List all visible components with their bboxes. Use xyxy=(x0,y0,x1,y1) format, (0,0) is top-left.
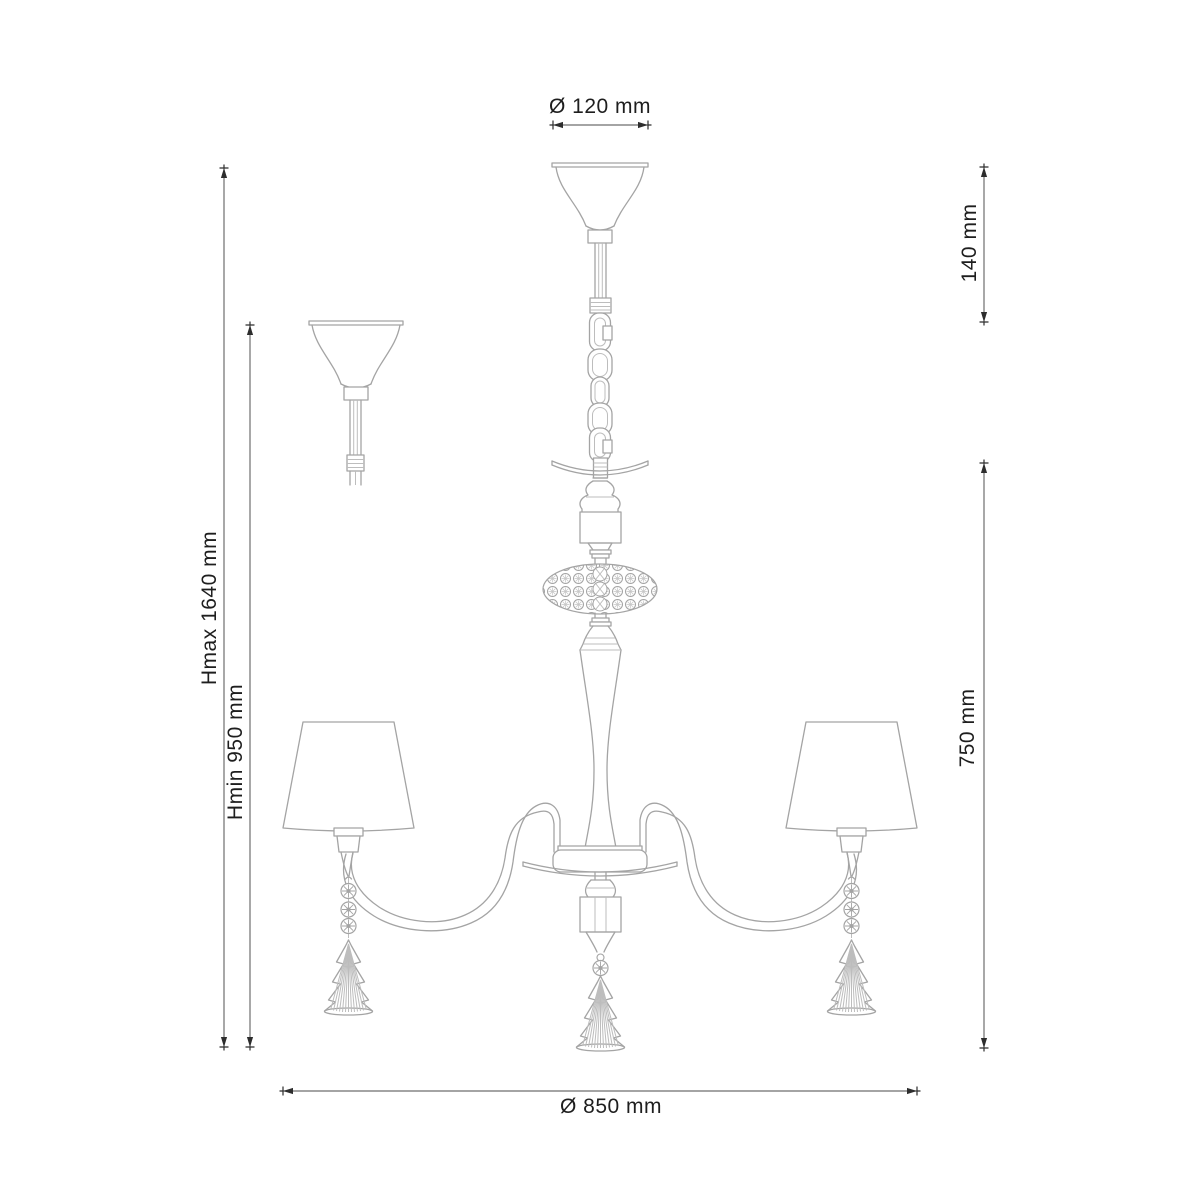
crystal-ring xyxy=(543,564,657,614)
chandelier-technical-drawing: Ø 120 mm 140 mm Hmax 1640 mm Hmin 950 mm… xyxy=(0,0,1200,1200)
central-column xyxy=(580,650,621,848)
dim-height-min: Hmin 950 mm xyxy=(224,322,255,1051)
chandelier-drawing xyxy=(283,163,917,1051)
dim-suspension-height: 140 mm xyxy=(958,164,989,326)
dimension-drawing-page: Ø 120 mm 140 mm Hmax 1640 mm Hmin 950 mm… xyxy=(0,0,1200,1200)
dim-body-height: 750 mm xyxy=(956,460,989,1052)
central-body xyxy=(543,478,657,650)
dim-fixture-diameter-label: Ø 850 mm xyxy=(560,1095,662,1118)
ceiling-canopy xyxy=(552,163,648,243)
dim-canopy-diameter-label: Ø 120 mm xyxy=(549,95,651,118)
dim-suspension-height-label: 140 mm xyxy=(958,204,981,283)
left-lampshade-unit xyxy=(283,722,414,1015)
right-lampshade-unit xyxy=(786,722,917,1015)
suspension-rod xyxy=(590,243,611,313)
suspension-chain xyxy=(588,313,612,478)
canopy-detail-view xyxy=(309,321,403,485)
dim-body-height-label: 750 mm xyxy=(956,689,979,768)
lower-finial xyxy=(577,872,625,1051)
central-hub xyxy=(523,846,677,876)
dim-fixture-diameter: Ø 850 mm xyxy=(280,1087,921,1119)
dim-height-max: Hmax 1640 mm xyxy=(198,165,229,1051)
dim-canopy-diameter: Ø 120 mm xyxy=(549,95,652,130)
dim-height-max-label: Hmax 1640 mm xyxy=(198,531,221,685)
dim-height-min-label: Hmin 950 mm xyxy=(224,684,247,820)
